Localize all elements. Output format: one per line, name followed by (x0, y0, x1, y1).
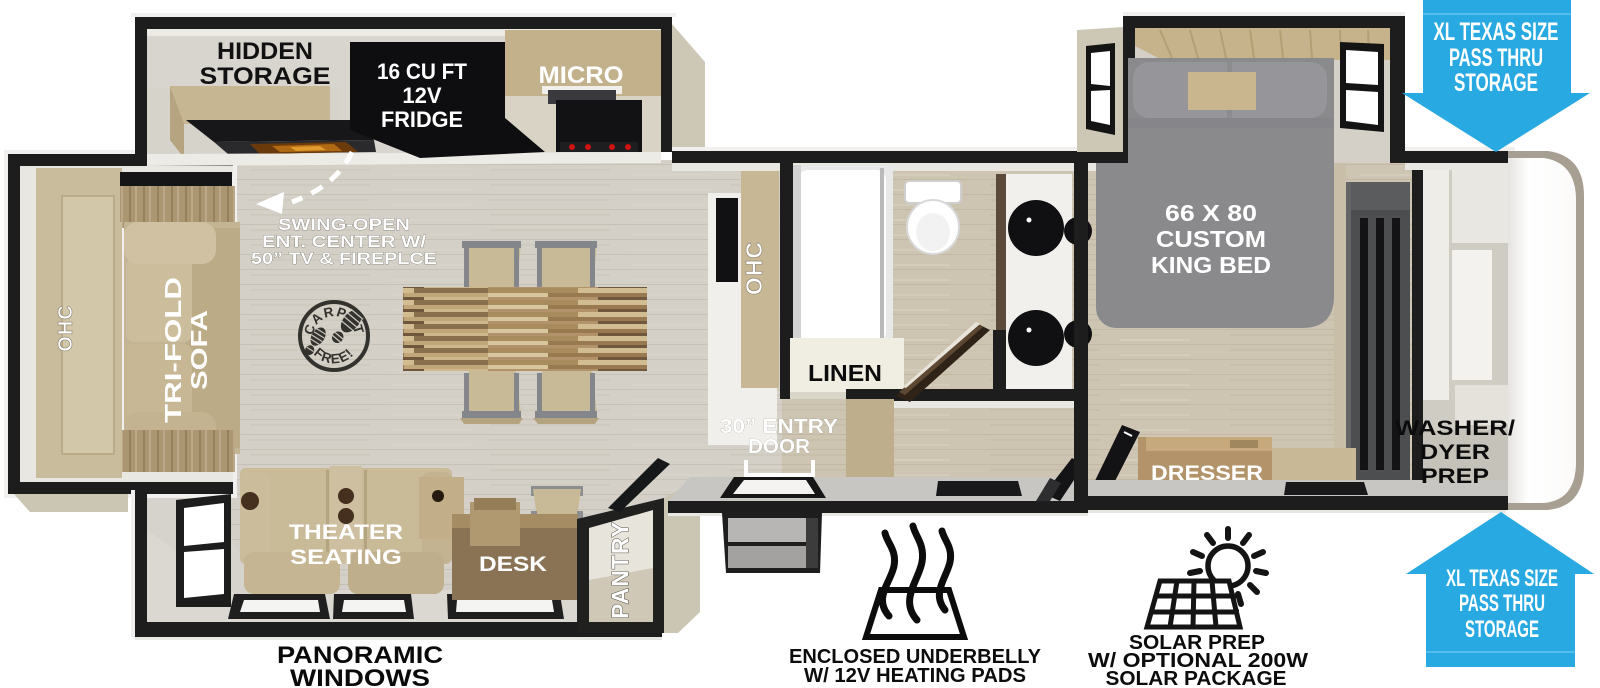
svg-text:66 X 80: 66 X 80 (1165, 200, 1257, 226)
svg-text:12V: 12V (402, 83, 441, 108)
svg-text:PANTRY: PANTRY (607, 521, 633, 619)
svg-text:DYER: DYER (1420, 440, 1491, 464)
svg-text:STORAGE: STORAGE (1465, 616, 1539, 643)
svg-text:30” ENTRY: 30” ENTRY (720, 416, 839, 438)
svg-text:KING BED: KING BED (1151, 252, 1271, 278)
svg-text:XL TEXAS SIZE: XL TEXAS SIZE (1446, 565, 1558, 592)
svg-text:OHC: OHC (741, 241, 767, 295)
svg-text:50” TV & FIREPLCE: 50” TV & FIREPLCE (251, 249, 437, 268)
svg-text:OHC: OHC (55, 304, 77, 351)
svg-text:SOLAR PACKAGE: SOLAR PACKAGE (1106, 667, 1287, 688)
svg-text:PASS THRU: PASS THRU (1449, 44, 1543, 72)
svg-text:TRI-FOLD: TRI-FOLD (160, 277, 186, 423)
svg-text:HIDDEN: HIDDEN (217, 38, 313, 65)
svg-text:LINEN: LINEN (808, 360, 882, 386)
svg-text:THEATER: THEATER (289, 521, 403, 544)
svg-text:SEATING: SEATING (290, 546, 402, 569)
svg-text:WINDOWS: WINDOWS (290, 665, 430, 688)
svg-text:WASHER/: WASHER/ (1395, 416, 1515, 440)
svg-text:XL TEXAS SIZE: XL TEXAS SIZE (1434, 18, 1559, 46)
svg-text:DESK: DESK (479, 553, 547, 576)
svg-text:FRIDGE: FRIDGE (381, 107, 463, 132)
svg-text:PREP: PREP (1421, 464, 1489, 488)
svg-text:STORAGE: STORAGE (1454, 69, 1538, 97)
svg-text:MICRO: MICRO (539, 62, 624, 89)
svg-text:DOOR: DOOR (748, 436, 811, 458)
svg-text:CUSTOM: CUSTOM (1156, 226, 1266, 252)
svg-text:PASS THRU: PASS THRU (1459, 590, 1545, 617)
svg-text:STORAGE: STORAGE (200, 63, 331, 90)
svg-text:W/ 12V HEATING PADS: W/ 12V HEATING PADS (804, 664, 1026, 687)
svg-text:SOFA: SOFA (186, 310, 212, 390)
svg-text:16 CU FT: 16 CU FT (377, 59, 468, 84)
